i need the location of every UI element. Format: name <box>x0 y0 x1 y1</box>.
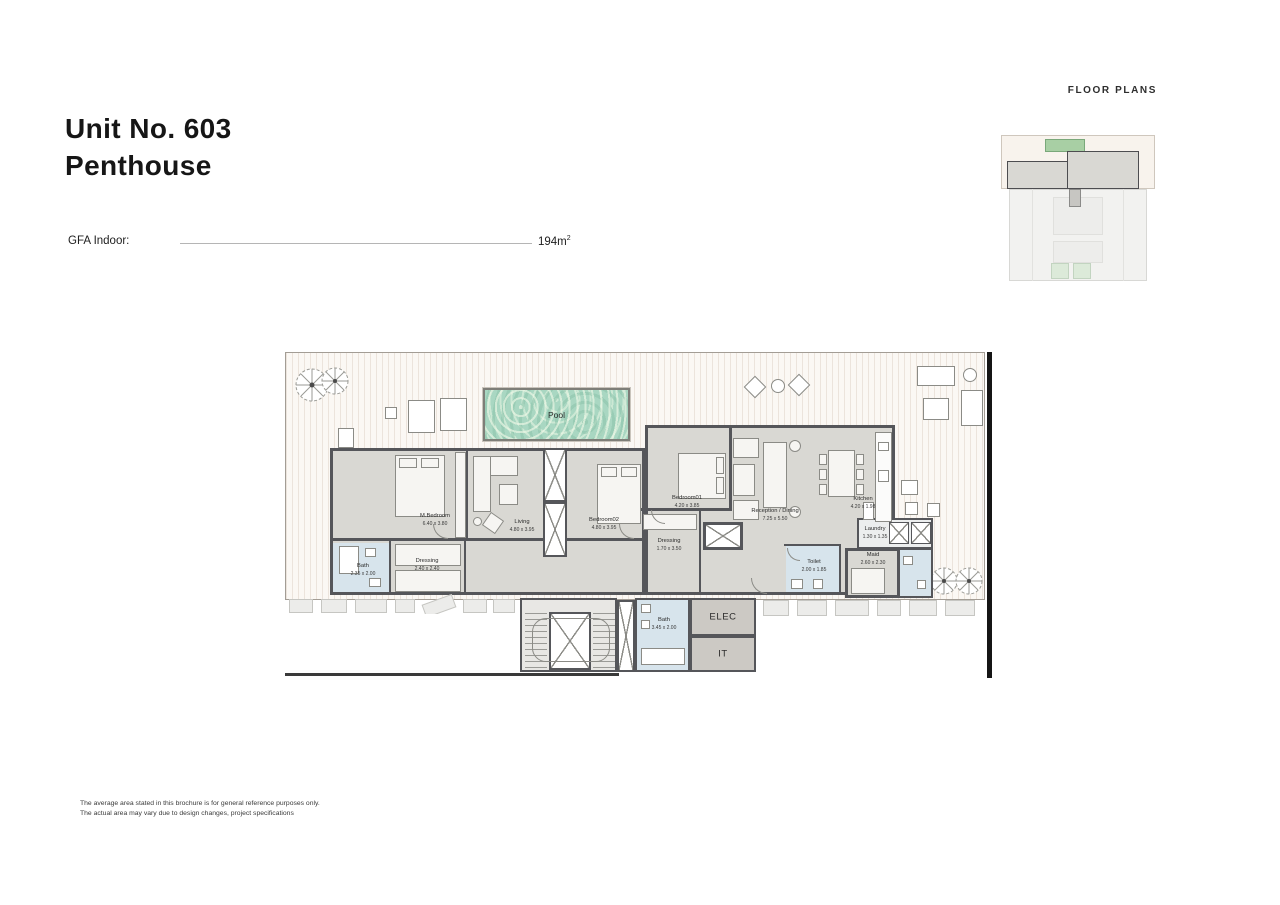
neighbour-wall-stub <box>945 600 975 616</box>
wall <box>699 510 701 595</box>
dining-chair <box>819 454 827 465</box>
disclaimer-line-1: The average area stated in this brochure… <box>80 799 320 809</box>
dryer-icon <box>911 522 931 544</box>
duct-shaft <box>617 600 635 672</box>
side-table <box>473 517 482 526</box>
neighbour-wall-stub <box>877 600 901 616</box>
terrace-chair <box>905 502 918 515</box>
armchair <box>733 438 759 458</box>
room-label-it: IT <box>718 649 728 660</box>
stair-handrail <box>532 618 610 662</box>
basin-icon <box>641 604 651 613</box>
room-label-bedroom01: Bedroom014.20 x 3.85 <box>672 495 702 509</box>
room-label-bedroom02: Bedroom024.80 x 3.95 <box>589 517 619 531</box>
dining-chair <box>856 469 864 480</box>
pillow <box>601 467 617 477</box>
unit-type: Penthouse <box>65 147 232 184</box>
bed-icon <box>851 568 885 594</box>
room-label-dressing-mid: Dressing1.70 x 3.50 <box>657 538 682 552</box>
neighbour-wall-stub <box>321 599 347 613</box>
outdoor-table <box>923 398 949 420</box>
crop-cover <box>758 620 985 684</box>
keyplan-pool-small-1 <box>1051 263 1069 279</box>
wall <box>729 425 732 510</box>
wall <box>464 540 466 595</box>
dining-chair <box>856 484 864 495</box>
room-label-bath-core: Bath3.45 x 2.00 <box>652 617 677 631</box>
wall <box>839 544 841 595</box>
pool: Pool <box>483 388 630 441</box>
pool-lounger <box>408 400 435 433</box>
wardrobe <box>455 452 466 538</box>
pool-label: Pool <box>548 410 565 420</box>
wardrobe <box>395 570 461 592</box>
room-label-elec: ELEC <box>709 612 736 623</box>
room-label-toilet: Toilet2.00 x 1.85 <box>802 559 827 573</box>
elevator-shaft <box>703 522 743 550</box>
wall <box>389 540 391 595</box>
gfa-value: 194m2 <box>538 235 571 248</box>
bathtub-icon <box>641 648 685 665</box>
toilet-icon <box>641 620 650 629</box>
washer-icon <box>889 522 909 544</box>
terrace-chair <box>927 503 940 517</box>
wall <box>784 544 841 546</box>
wall <box>330 538 645 541</box>
gfa-label: GFA Indoor: <box>68 235 129 247</box>
key-plan-thumbnail <box>993 123 1163 295</box>
neighbour-wall-stub <box>493 599 515 613</box>
keyplan-pool-small-2 <box>1073 263 1091 279</box>
pool-lounger <box>440 398 467 431</box>
keyplan-unit-highlight-right <box>1067 151 1139 189</box>
outdoor-sofa <box>917 366 955 386</box>
basin-icon <box>813 579 823 589</box>
terrace-bench <box>338 428 354 448</box>
terrace-table <box>901 480 918 495</box>
dining-chair <box>819 484 827 495</box>
section-cut-line <box>285 673 619 676</box>
kitchen-hob-icon <box>878 470 889 482</box>
floor-plan: Pool <box>285 352 997 684</box>
side-table <box>789 440 801 452</box>
keyplan-core-shaft <box>1069 189 1081 207</box>
basin-icon <box>917 580 926 589</box>
room-label-maid: Maid2.60 x 2.30 <box>861 552 886 566</box>
unit-number: Unit No. 603 <box>65 110 232 147</box>
wardrobe <box>643 514 697 530</box>
pillow <box>621 467 637 477</box>
section-marker-line <box>987 352 992 678</box>
neighbour-wall-stub <box>835 600 869 616</box>
tree-icon <box>956 568 982 594</box>
neighbour-wall-stub <box>289 599 313 613</box>
duct-shaft <box>543 502 567 557</box>
room-label-kitchen: Kitchen4.20 x 1.98 <box>851 496 876 510</box>
keyplan-wing-left <box>1009 189 1033 281</box>
toilet-icon <box>365 548 376 557</box>
disclaimer-line-2: The actual area may vary due to design c… <box>80 809 320 819</box>
toilet-icon <box>903 556 913 565</box>
dining-chair <box>819 469 827 480</box>
side-table <box>385 407 397 419</box>
neighbour-wall-stub <box>463 599 487 613</box>
terrace-round-table <box>771 379 785 393</box>
pillow <box>716 477 724 494</box>
neighbour-wall-stub <box>763 600 789 616</box>
outdoor-round-table <box>963 368 977 382</box>
sofa-icon <box>473 456 491 512</box>
neighbour-wall-stub <box>395 599 415 613</box>
neighbour-wall-stub <box>909 600 937 616</box>
disclaimer: The average area stated in this brochure… <box>80 799 320 819</box>
room-label-reception: Reception / Dining7.25 x 5.50 <box>751 508 798 522</box>
keyplan-court2 <box>1053 241 1103 263</box>
coffee-table <box>499 484 518 505</box>
outdoor-lounge <box>961 390 983 426</box>
neighbour-wall-stub <box>797 600 827 616</box>
gfa-leader-line <box>180 243 532 244</box>
tree-icon <box>322 368 348 394</box>
keyplan-wing-right <box>1123 189 1147 281</box>
sofa-icon <box>733 464 755 496</box>
sofa-icon <box>763 442 787 508</box>
toilet-icon <box>791 579 803 589</box>
room-label-bath-left: Bath2.35 x 2.00 <box>351 563 376 577</box>
brochure-page: FLOOR PLANS Unit No. 603 Penthouse GFA I… <box>0 0 1280 905</box>
room-label-laundry: Laundry1.30 x 1.35 <box>863 526 888 540</box>
keyplan-unit-highlight-left <box>1007 161 1069 189</box>
room-label-mbedroom: M.Bedroom6.40 x 3.80 <box>420 513 450 527</box>
pillow <box>399 458 417 468</box>
page-kicker: FLOOR PLANS <box>1068 85 1157 96</box>
duct-shaft <box>543 448 567 502</box>
kitchen-sink-icon <box>878 442 889 451</box>
dining-chair <box>856 454 864 465</box>
tree-icon <box>931 568 957 594</box>
basin-icon <box>369 578 381 587</box>
pillow <box>421 458 439 468</box>
wall <box>466 448 468 540</box>
dining-table <box>828 450 855 497</box>
room-label-dressing-left: Dressing2.40 x 2.40 <box>415 558 440 572</box>
room-label-living: Living4.80 x 3.95 <box>510 519 535 533</box>
neighbour-wall-stub <box>355 599 387 613</box>
page-title: Unit No. 603 Penthouse <box>65 110 232 184</box>
pillow <box>716 457 724 474</box>
